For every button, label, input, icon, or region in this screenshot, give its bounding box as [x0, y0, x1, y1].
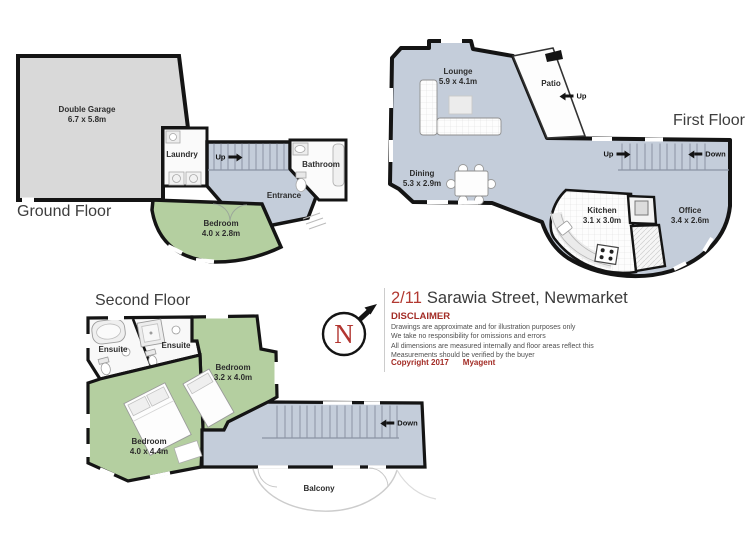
lounge-table: [449, 96, 472, 114]
kitchen-dims: 3.1 x 3.0m: [583, 216, 621, 226]
ground-floor-title: Ground Floor: [17, 203, 111, 221]
tiled-area-shape: [631, 225, 665, 271]
disclaimer-title: DISCLAIMER: [391, 311, 450, 322]
laundry-label: Laundry: [166, 150, 198, 160]
stove: [595, 244, 618, 264]
entrance-label: Entrance: [267, 191, 301, 201]
right-arrow-icon: [229, 153, 243, 161]
office-dims: 3.4 x 2.6m: [671, 216, 709, 226]
patio-up-label: Up: [560, 92, 587, 101]
bedroom-name: Bedroom: [214, 363, 252, 373]
disclaimer-line: We take no responsibility for omissions …: [391, 332, 594, 341]
compass: N: [323, 304, 377, 355]
lounge-label: Lounge 5.9 x 4.1m: [439, 67, 477, 87]
bedroom-name: Bedroom: [130, 437, 168, 447]
balcony-label: Balcony: [303, 484, 334, 494]
up-text: Up: [577, 92, 587, 101]
dining-dims: 5.3 x 2.9m: [403, 179, 441, 189]
bedroom-dims: 4.0 x 4.4m: [130, 447, 168, 457]
kitchen-name: Kitchen: [583, 206, 621, 216]
office-name: Office: [671, 206, 709, 216]
floorplan-page: N Ground Floor Double Garage 6.7 x 5.8m …: [0, 0, 749, 546]
compass-north-label: N: [334, 319, 354, 349]
garage-label: Double Garage 6.7 x 5.8m: [59, 105, 116, 125]
second-floor-title: Second Floor: [95, 292, 190, 310]
basin: [172, 326, 180, 334]
disclaimer-line: Drawings are approximate and for illustr…: [391, 323, 594, 332]
ground-up-label: Up: [216, 153, 243, 162]
left-arrow-icon: [688, 150, 702, 158]
dining-name: Dining: [403, 169, 441, 179]
copyright-text: Copyright 2017: [391, 358, 449, 367]
address-title: 2/11Sarawia Street, Newmarket: [391, 289, 628, 308]
down-text: Down: [397, 419, 417, 428]
first-floor-title: First Floor: [673, 112, 745, 130]
address-unit: 2/11: [391, 289, 422, 307]
up-text: Up: [604, 150, 614, 159]
disclaimer-text: Drawings are approximate and for illustr…: [391, 323, 594, 360]
second-bedroom1-label: Bedroom 3.2 x 4.0m: [214, 363, 252, 383]
ground-bathroom-label: Bathroom: [302, 160, 340, 170]
left-arrow-icon: [560, 92, 574, 100]
lounge-dims: 5.9 x 4.1m: [439, 77, 477, 87]
bathtub: [91, 318, 127, 345]
address-street: Sarawia Street, Newmarket: [427, 289, 628, 307]
first-up-label: Up: [604, 150, 631, 159]
info-divider: [384, 288, 385, 372]
ensuite-label: Ensuite: [162, 341, 191, 351]
garage-name: Double Garage: [59, 105, 116, 115]
right-arrow-icon: [617, 150, 631, 158]
down-text: Down: [705, 150, 725, 159]
agency-name: Myagent: [463, 358, 495, 367]
bedroom-dims: 3.2 x 4.0m: [214, 373, 252, 383]
lounge-name: Lounge: [439, 67, 477, 77]
bedroom-name: Bedroom: [202, 219, 240, 229]
copyright-line: Copyright 2017Myagent: [391, 358, 495, 367]
ensuite-label: Ensuite: [99, 345, 128, 355]
kitchen-label: Kitchen 3.1 x 3.0m: [583, 206, 621, 226]
first-down-label: Down: [688, 150, 725, 159]
disclaimer-line: All dimensions are measured internally a…: [391, 342, 594, 351]
up-text: Up: [216, 153, 226, 162]
garage-dims: 6.7 x 5.8m: [59, 115, 116, 125]
dining-label: Dining 5.3 x 2.9m: [403, 169, 441, 189]
patio-label: Patio: [541, 79, 561, 89]
second-down-label: Down: [380, 419, 417, 428]
left-arrow-icon: [380, 419, 394, 427]
bedroom-dims: 4.0 x 2.8m: [202, 229, 240, 239]
ground-bedroom-label: Bedroom 4.0 x 2.8m: [202, 219, 240, 239]
floorplan-drawing: N: [0, 0, 749, 546]
office-label: Office 3.4 x 2.6m: [671, 206, 709, 226]
second-bedroom2-label: Bedroom 4.0 x 4.4m: [130, 437, 168, 457]
